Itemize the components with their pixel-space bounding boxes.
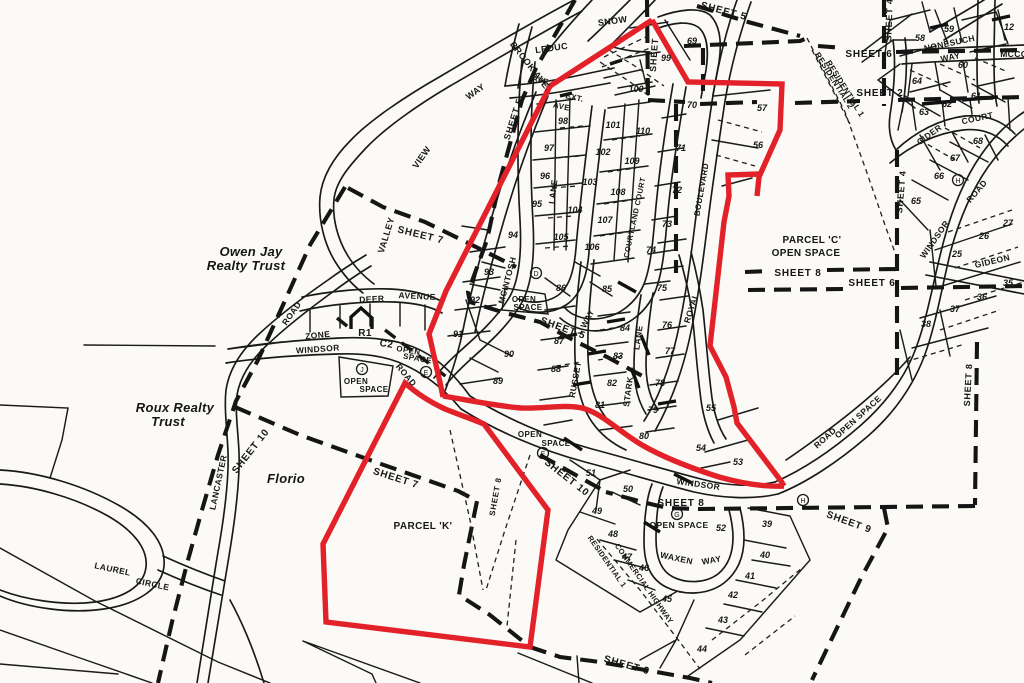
svg-text:64: 64	[912, 76, 922, 86]
svg-text:41: 41	[744, 571, 755, 581]
svg-text:53: 53	[733, 457, 743, 467]
svg-text:35: 35	[1003, 278, 1014, 288]
svg-text:C2: C2	[379, 338, 394, 351]
svg-text:44: 44	[696, 644, 707, 654]
svg-text:SHEET 2: SHEET 2	[856, 88, 903, 99]
svg-text:Florio: Florio	[267, 471, 305, 486]
svg-text:81: 81	[595, 400, 605, 410]
svg-text:26: 26	[978, 231, 990, 241]
svg-text:SPACE: SPACE	[542, 439, 571, 448]
svg-text:R1: R1	[358, 328, 372, 339]
svg-text:58: 58	[915, 33, 925, 43]
svg-text:89: 89	[493, 376, 503, 386]
svg-text:69: 69	[687, 36, 697, 46]
svg-text:PARCEL 'K': PARCEL 'K'	[394, 521, 453, 532]
svg-text:91: 91	[453, 329, 463, 339]
svg-text:88: 88	[551, 364, 561, 374]
svg-text:75: 75	[657, 283, 668, 293]
svg-text:45: 45	[661, 594, 673, 604]
svg-text:J: J	[360, 367, 364, 374]
svg-text:OPEN SPACE: OPEN SPACE	[772, 248, 841, 259]
svg-text:F: F	[541, 451, 545, 458]
svg-text:PARCEL 'C': PARCEL 'C'	[783, 235, 842, 246]
svg-text:68: 68	[973, 136, 983, 146]
svg-text:39: 39	[762, 519, 772, 529]
svg-text:70: 70	[687, 100, 697, 110]
svg-text:37: 37	[950, 304, 961, 314]
svg-text:60: 60	[958, 60, 968, 70]
svg-text:Owen Jay: Owen Jay	[219, 244, 283, 259]
svg-text:80: 80	[639, 431, 649, 441]
svg-text:63: 63	[919, 107, 929, 117]
svg-text:12: 12	[1004, 22, 1014, 32]
svg-text:78: 78	[655, 378, 665, 388]
svg-text:109: 109	[624, 156, 639, 166]
svg-text:49: 49	[591, 506, 602, 516]
svg-text:50: 50	[623, 484, 633, 494]
svg-text:36: 36	[977, 292, 988, 302]
svg-text:H: H	[800, 498, 805, 505]
svg-text:84: 84	[620, 323, 630, 333]
svg-text:101: 101	[605, 120, 620, 130]
svg-text:104: 104	[567, 205, 582, 215]
svg-text:59: 59	[944, 24, 954, 34]
svg-text:66: 66	[934, 171, 945, 181]
svg-text:62: 62	[942, 99, 952, 109]
svg-text:106: 106	[584, 242, 600, 252]
svg-text:100: 100	[628, 84, 643, 94]
svg-text:110: 110	[636, 126, 650, 136]
svg-text:SHEET 6: SHEET 6	[848, 278, 895, 289]
svg-text:H: H	[955, 178, 960, 185]
svg-text:SHEET 6: SHEET 6	[845, 49, 892, 60]
svg-text:E: E	[424, 370, 429, 377]
svg-text:Trust: Trust	[151, 414, 185, 429]
svg-text:74: 74	[646, 245, 656, 255]
svg-text:25: 25	[951, 249, 963, 259]
svg-text:94: 94	[508, 230, 518, 240]
svg-text:71: 71	[676, 143, 686, 153]
svg-text:86: 86	[556, 283, 567, 293]
svg-text:102: 102	[595, 147, 610, 157]
svg-text:97: 97	[544, 143, 555, 153]
svg-text:77: 77	[665, 346, 676, 356]
svg-text:72: 72	[672, 185, 682, 195]
svg-text:73: 73	[662, 219, 672, 229]
svg-text:Roux Realty: Roux Realty	[136, 400, 215, 415]
svg-text:56: 56	[753, 140, 764, 150]
svg-text:57: 57	[757, 103, 768, 113]
svg-text:51: 51	[586, 468, 596, 478]
svg-text:OPEN SPACE: OPEN SPACE	[649, 520, 708, 530]
svg-text:38: 38	[921, 319, 931, 329]
svg-text:99: 99	[661, 53, 671, 63]
svg-text:107: 107	[597, 215, 613, 225]
svg-text:SPACE: SPACE	[514, 303, 543, 312]
svg-text:48: 48	[607, 529, 618, 539]
svg-text:103: 103	[582, 177, 597, 187]
svg-text:76: 76	[662, 320, 673, 330]
svg-text:SPACE: SPACE	[360, 385, 389, 394]
svg-text:61: 61	[971, 91, 981, 101]
svg-text:SHEET 8: SHEET 8	[657, 498, 704, 509]
svg-text:MCCO: MCCO	[1000, 49, 1024, 59]
svg-text:Realty Trust: Realty Trust	[207, 258, 286, 273]
svg-text:43: 43	[717, 615, 728, 625]
svg-text:SHEET 8: SHEET 8	[774, 268, 821, 279]
svg-text:47: 47	[621, 552, 633, 562]
svg-text:98: 98	[558, 116, 568, 126]
svg-text:93: 93	[484, 267, 494, 277]
svg-text:54: 54	[696, 443, 706, 453]
svg-text:92: 92	[470, 295, 480, 305]
svg-text:95: 95	[532, 199, 543, 209]
svg-text:DEER: DEER	[359, 293, 385, 304]
svg-text:108: 108	[610, 187, 625, 197]
svg-text:96: 96	[540, 171, 551, 181]
svg-text:SHEET 4: SHEET 4	[883, 0, 894, 42]
svg-text:27: 27	[1002, 218, 1014, 228]
svg-text:52: 52	[716, 523, 726, 533]
svg-text:G: G	[674, 512, 679, 519]
svg-text:90: 90	[504, 349, 514, 359]
svg-text:82: 82	[607, 378, 617, 388]
svg-text:55: 55	[706, 403, 717, 413]
svg-text:79: 79	[648, 405, 658, 415]
svg-text:87: 87	[554, 336, 565, 346]
svg-text:40: 40	[759, 550, 770, 560]
svg-text:AVENUE: AVENUE	[398, 290, 436, 302]
svg-text:OPEN: OPEN	[518, 430, 542, 439]
svg-text:D: D	[533, 271, 538, 278]
svg-text:85: 85	[602, 284, 613, 294]
svg-text:46: 46	[638, 563, 650, 573]
svg-text:67: 67	[950, 153, 961, 163]
svg-text:105: 105	[553, 232, 569, 242]
svg-text:65: 65	[911, 196, 922, 206]
svg-text:42: 42	[727, 590, 738, 600]
svg-text:83: 83	[613, 351, 623, 361]
